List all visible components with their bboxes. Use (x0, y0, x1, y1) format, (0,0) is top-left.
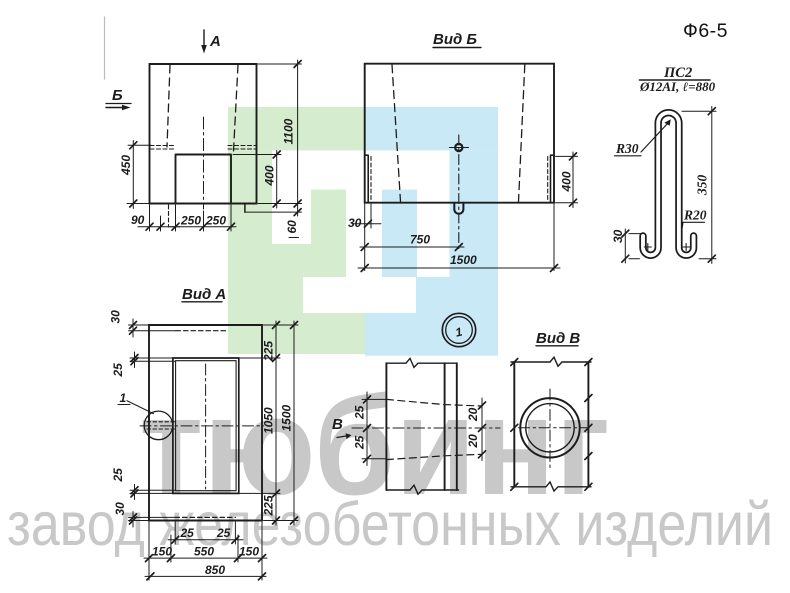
svg-text:В: В (332, 416, 343, 433)
svg-text:Ф6-5: Ф6-5 (683, 20, 728, 42)
svg-text:25: 25 (353, 435, 367, 450)
svg-text:R30: R30 (615, 141, 639, 156)
svg-text:550: 550 (194, 545, 214, 559)
svg-text:20: 20 (466, 434, 480, 449)
svg-text:20: 20 (466, 407, 480, 422)
svg-text:25: 25 (111, 468, 125, 483)
svg-text:Вид Б: Вид Б (433, 31, 477, 48)
svg-text:225: 225 (262, 495, 276, 516)
svg-text:850: 850 (205, 563, 225, 577)
svg-text:150: 150 (239, 545, 259, 559)
svg-text:30: 30 (109, 310, 123, 324)
svg-text:1050: 1050 (262, 407, 276, 434)
svg-text:R20: R20 (683, 208, 707, 223)
svg-text:25: 25 (216, 526, 231, 540)
svg-text:1500: 1500 (280, 404, 294, 431)
svg-text:Вид В: Вид В (536, 330, 580, 347)
svg-text:Ø12АI, ℓ=880: Ø12АI, ℓ=880 (639, 79, 716, 94)
svg-text:150: 150 (152, 545, 172, 559)
svg-text:90: 90 (131, 213, 145, 227)
svg-text:Б: Б (112, 87, 123, 104)
svg-text:25: 25 (353, 405, 367, 420)
svg-text:400: 400 (560, 171, 574, 192)
svg-text:Вид А: Вид А (182, 286, 226, 303)
svg-text:25: 25 (180, 526, 195, 540)
svg-text:750: 750 (410, 233, 430, 247)
svg-text:1500: 1500 (450, 253, 477, 267)
svg-text:1100: 1100 (282, 118, 296, 144)
svg-text:350: 350 (695, 175, 710, 197)
svg-text:60: 60 (285, 220, 299, 234)
svg-text:250: 250 (180, 214, 201, 228)
svg-text:450: 450 (119, 155, 133, 176)
svg-text:250: 250 (205, 214, 226, 228)
svg-text:25: 25 (111, 363, 125, 378)
svg-text:30: 30 (611, 229, 625, 243)
svg-text:30: 30 (113, 502, 127, 516)
svg-text:завод железобетонных изделий: завод железобетонных изделий (7, 490, 773, 558)
svg-text:400: 400 (263, 165, 277, 186)
svg-text:А: А (209, 33, 221, 50)
svg-text:1: 1 (120, 391, 127, 405)
svg-text:30: 30 (348, 216, 362, 230)
svg-text:225: 225 (262, 341, 276, 362)
